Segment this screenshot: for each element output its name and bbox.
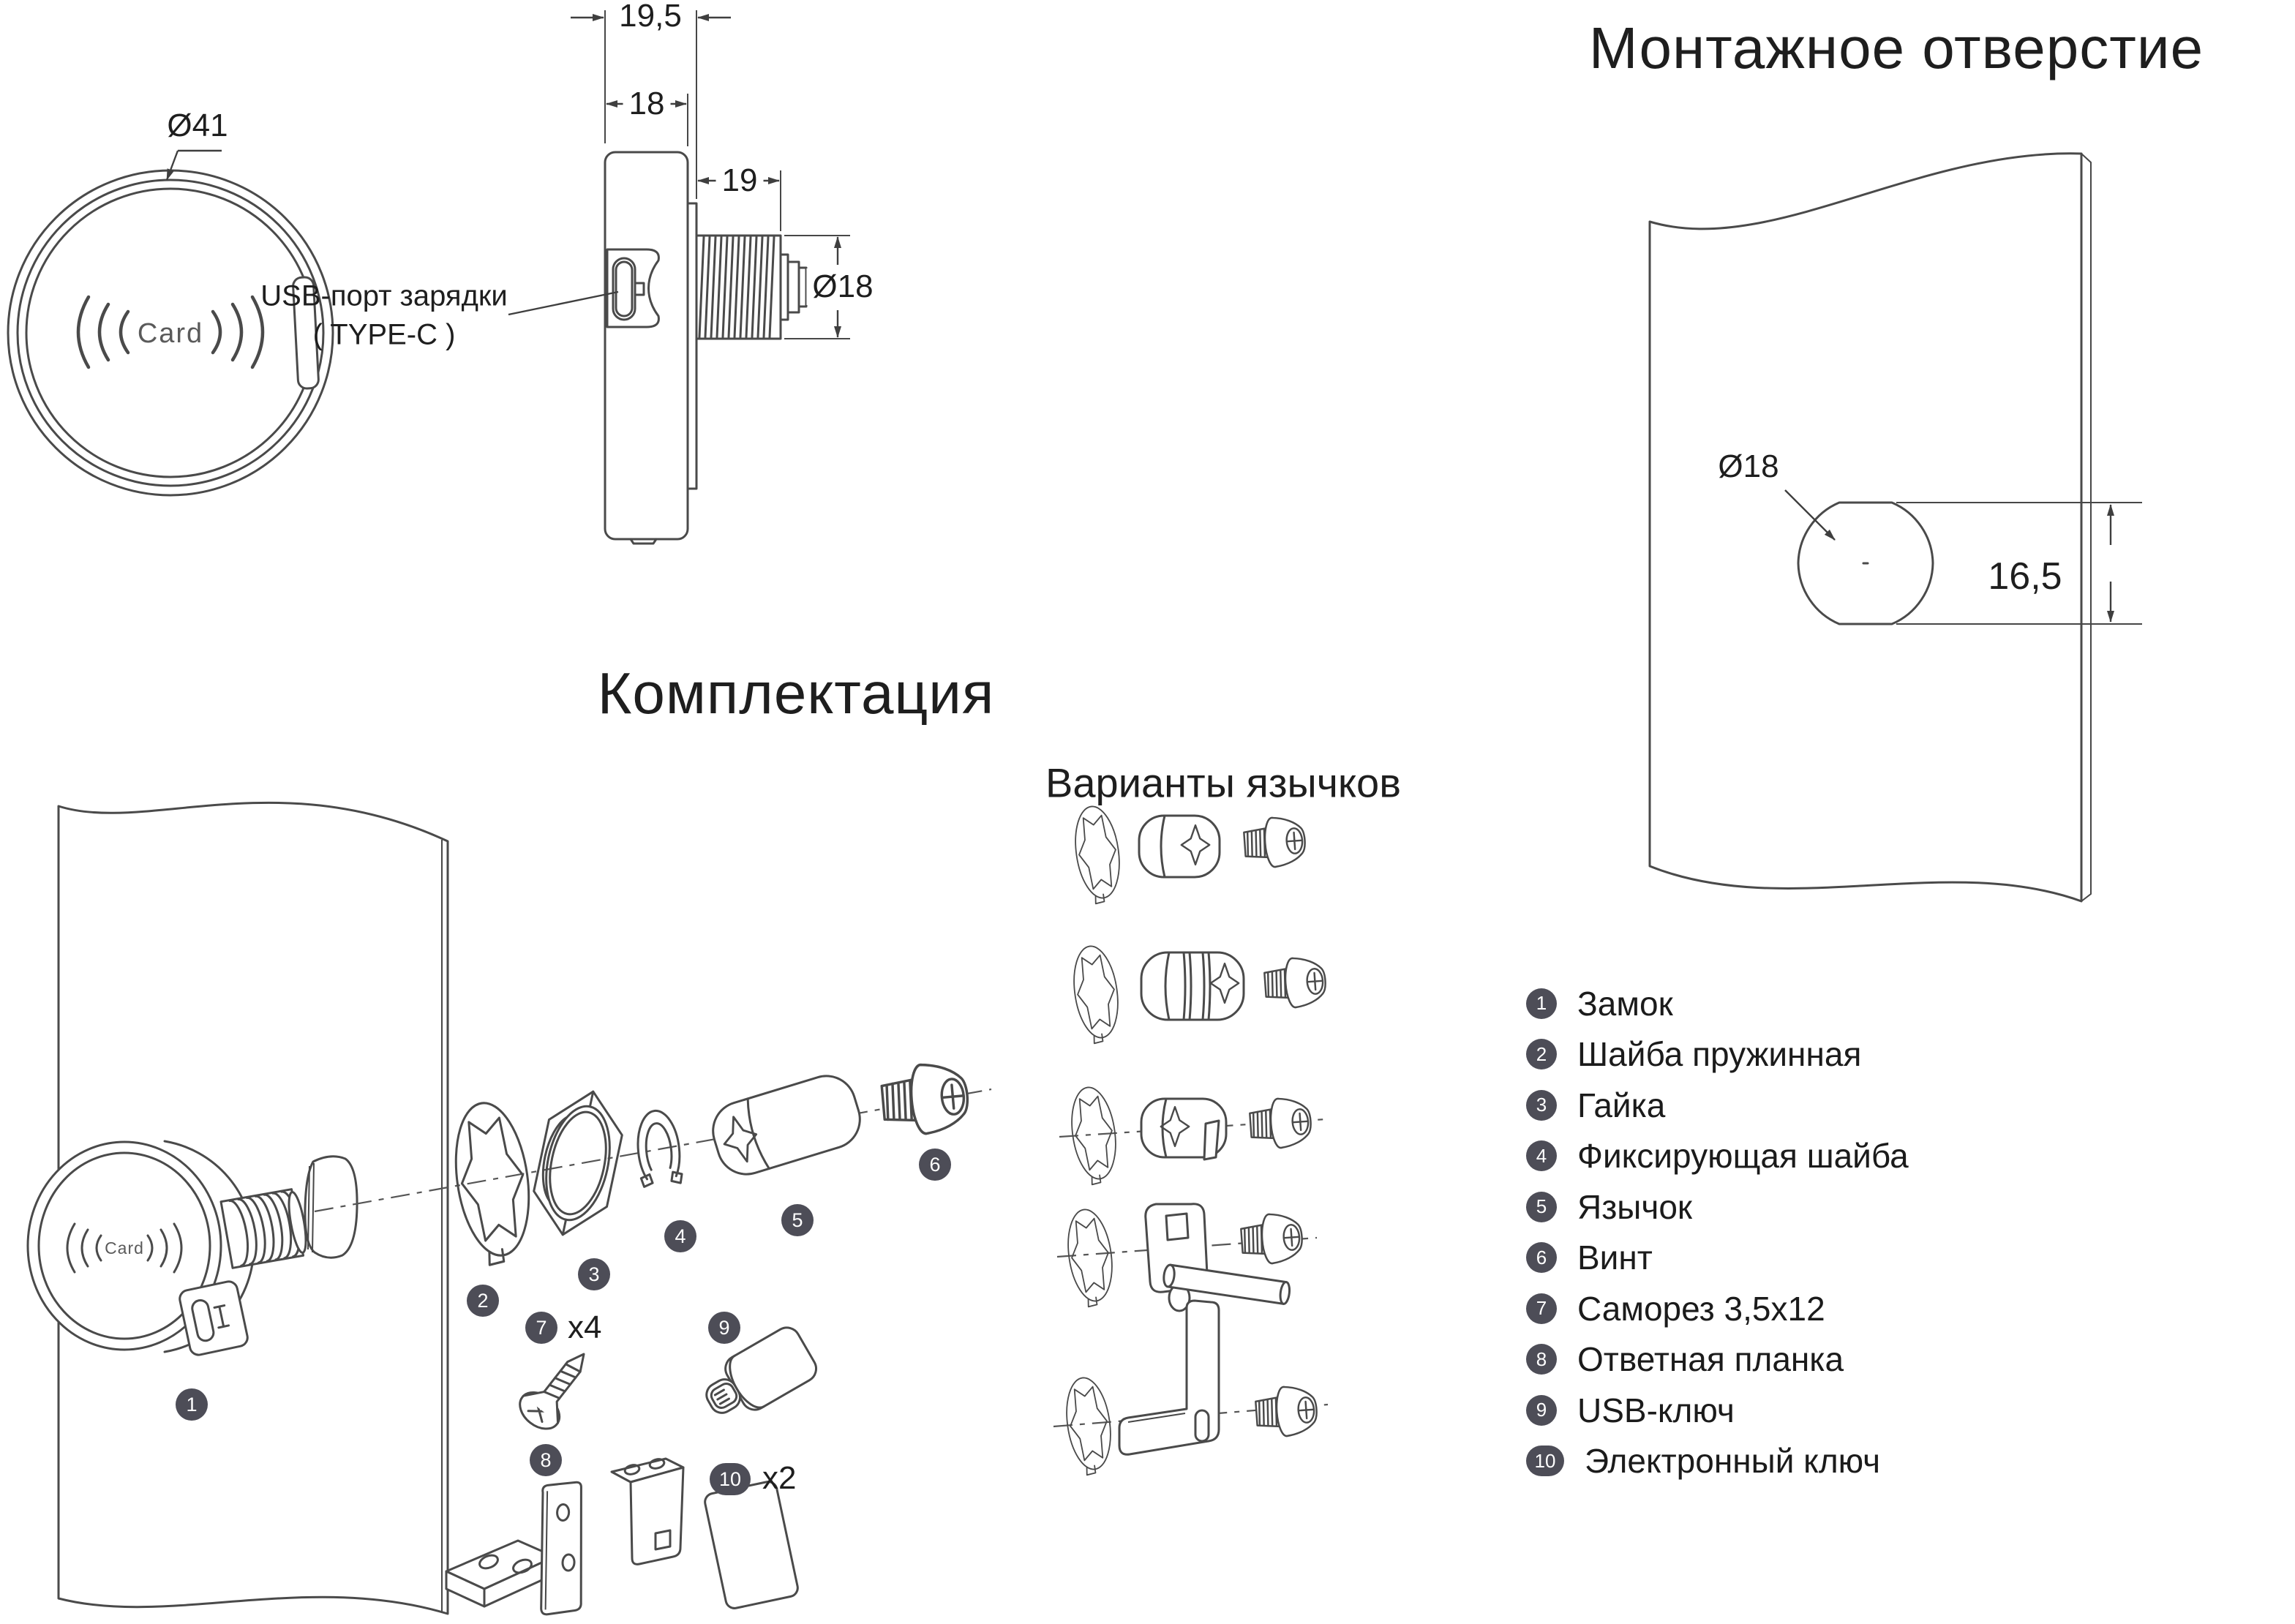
cam-screw: [880, 1061, 970, 1137]
usb-port-type-label: ( TYPE-C ): [313, 319, 456, 352]
callout-1: 1: [176, 1388, 208, 1421]
threaded-barrel: [696, 236, 781, 339]
dim-total-depth: 19,5: [619, 0, 682, 34]
electronic-key-card: [703, 1480, 799, 1609]
item-label: Саморез 3,5х12: [1577, 1289, 1825, 1328]
callout-4: 4: [664, 1220, 696, 1252]
parts-list-item: 10Электронный ключ: [1526, 1436, 1909, 1487]
callout-10: 10: [710, 1463, 751, 1495]
item-number-badge: 1: [1526, 988, 1557, 1019]
parts-list-item: 6Винт: [1526, 1233, 1909, 1284]
tongue: [706, 1069, 867, 1181]
card-label-exploded: Card: [105, 1238, 144, 1258]
parts-list-item: 1Замок: [1526, 978, 1909, 1029]
item-number-badge: 6: [1526, 1242, 1557, 1273]
fixing-washer: [634, 1109, 683, 1187]
callout-5: 5: [781, 1204, 814, 1236]
item-label: Замок: [1577, 984, 1673, 1023]
parts-list-item: 5Язычок: [1526, 1181, 1909, 1233]
tongue-variants: [1053, 804, 1328, 1477]
exploded-view: Card: [28, 802, 991, 1616]
item-number-badge: 5: [1526, 1192, 1557, 1222]
lock-side-view: [508, 10, 850, 544]
parts-list-item: 3Гайка: [1526, 1080, 1909, 1131]
self-tapping-screw: [513, 1341, 601, 1437]
item-label: USB-ключ: [1577, 1391, 1735, 1430]
item-number-badge: 7: [1526, 1293, 1557, 1324]
qty-screws: x4: [568, 1309, 601, 1346]
package-title: Комплектация: [598, 660, 995, 727]
qty-keys: x2: [762, 1460, 796, 1497]
line-art: Card: [0, 0, 2295, 1624]
callout-7: 7: [525, 1312, 557, 1344]
item-number-badge: 4: [1526, 1140, 1557, 1171]
item-label: Ответная планка: [1577, 1339, 1844, 1379]
strike-plates: [446, 1458, 683, 1617]
parts-list-item: 9USB-ключ: [1526, 1385, 1909, 1436]
spring-washer: [447, 1098, 539, 1268]
callout-8: 8: [530, 1444, 562, 1476]
parts-list-item: 2Шайба пружинная: [1526, 1029, 1909, 1080]
card-label: Card: [138, 318, 203, 349]
callout-2: 2: [467, 1285, 499, 1317]
callout-6: 6: [919, 1149, 951, 1181]
parts-list: 1Замок 2Шайба пружинная 3Гайка 4Фиксирую…: [1526, 978, 1909, 1486]
mounting-hole-title: Монтажное отверстие: [1589, 15, 2204, 82]
item-number-badge: 3: [1526, 1090, 1557, 1121]
callout-9: 9: [708, 1312, 740, 1344]
parts-list-item: 8Ответная планка: [1526, 1334, 1909, 1386]
nut: [526, 1084, 629, 1243]
item-number-badge: 9: [1526, 1395, 1557, 1426]
dim-hole-diameter: Ø18: [1718, 448, 1778, 485]
strike-plate-flat: [536, 1481, 587, 1616]
dim-body-depth: 18: [623, 86, 671, 122]
variant-row-1: [1070, 804, 1307, 906]
item-number-badge: 2: [1526, 1039, 1557, 1069]
variant-row-5: [1053, 1301, 1328, 1477]
flange-plate: [688, 203, 696, 489]
item-label: Шайба пружинная: [1577, 1034, 1861, 1074]
parts-list-item: 7Саморез 3,5х12: [1526, 1283, 1909, 1334]
item-number-badge: 10: [1526, 1446, 1564, 1476]
item-number-badge: 8: [1526, 1344, 1557, 1375]
item-label: Язычок: [1577, 1187, 1692, 1227]
dim-barrel-length: 19: [716, 162, 764, 199]
cam-boss: [781, 255, 810, 320]
item-label: Винт: [1577, 1238, 1653, 1277]
callout-3: 3: [578, 1258, 610, 1290]
variant-row-4: [1057, 1204, 1317, 1311]
item-label: Гайка: [1577, 1086, 1665, 1125]
usb-port-label: USB-порт зарядки: [260, 280, 508, 313]
lock-usb-bump: [179, 1280, 249, 1357]
dim-hole-across-flats: 16,5: [1988, 555, 2062, 598]
variant-row-3: [1059, 1085, 1326, 1187]
mounting-hole-view: [1650, 154, 2142, 901]
lock-barrel: [221, 1188, 309, 1268]
strike-plate-angle: [446, 1541, 555, 1606]
item-label: Электронный ключ: [1585, 1441, 1880, 1481]
item-label: Фиксирующая шайба: [1577, 1136, 1909, 1176]
technical-drawing-page: Card: [0, 0, 2295, 1624]
parts-list-item: 4Фиксирующая шайба: [1526, 1131, 1909, 1182]
dim-barrel-diameter: Ø18: [806, 268, 879, 305]
strike-plate-hook: [612, 1458, 683, 1565]
variant-row-2: [1069, 944, 1327, 1045]
lock-face-view: Card: [8, 151, 333, 495]
variants-title: Варианты язычков: [1045, 759, 1401, 807]
dim-face-diameter: Ø41: [167, 108, 228, 144]
